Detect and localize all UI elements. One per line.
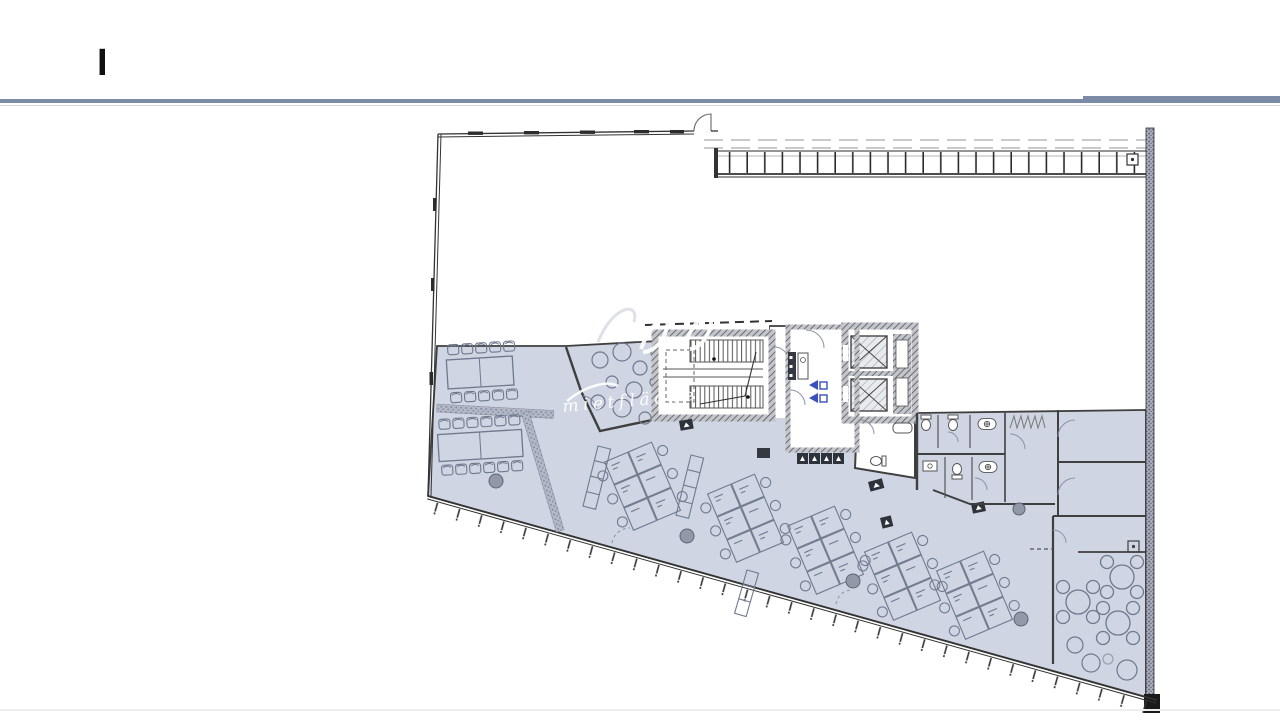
floor-plan: mietfläche [0,0,1280,720]
right-boundary-wall [1144,128,1160,713]
terrace [704,140,1152,178]
bottom-shadow-line [0,709,1280,711]
elevator-core [843,326,915,420]
presentation-slide: I [0,0,1280,720]
entry-door-arc [694,114,711,131]
